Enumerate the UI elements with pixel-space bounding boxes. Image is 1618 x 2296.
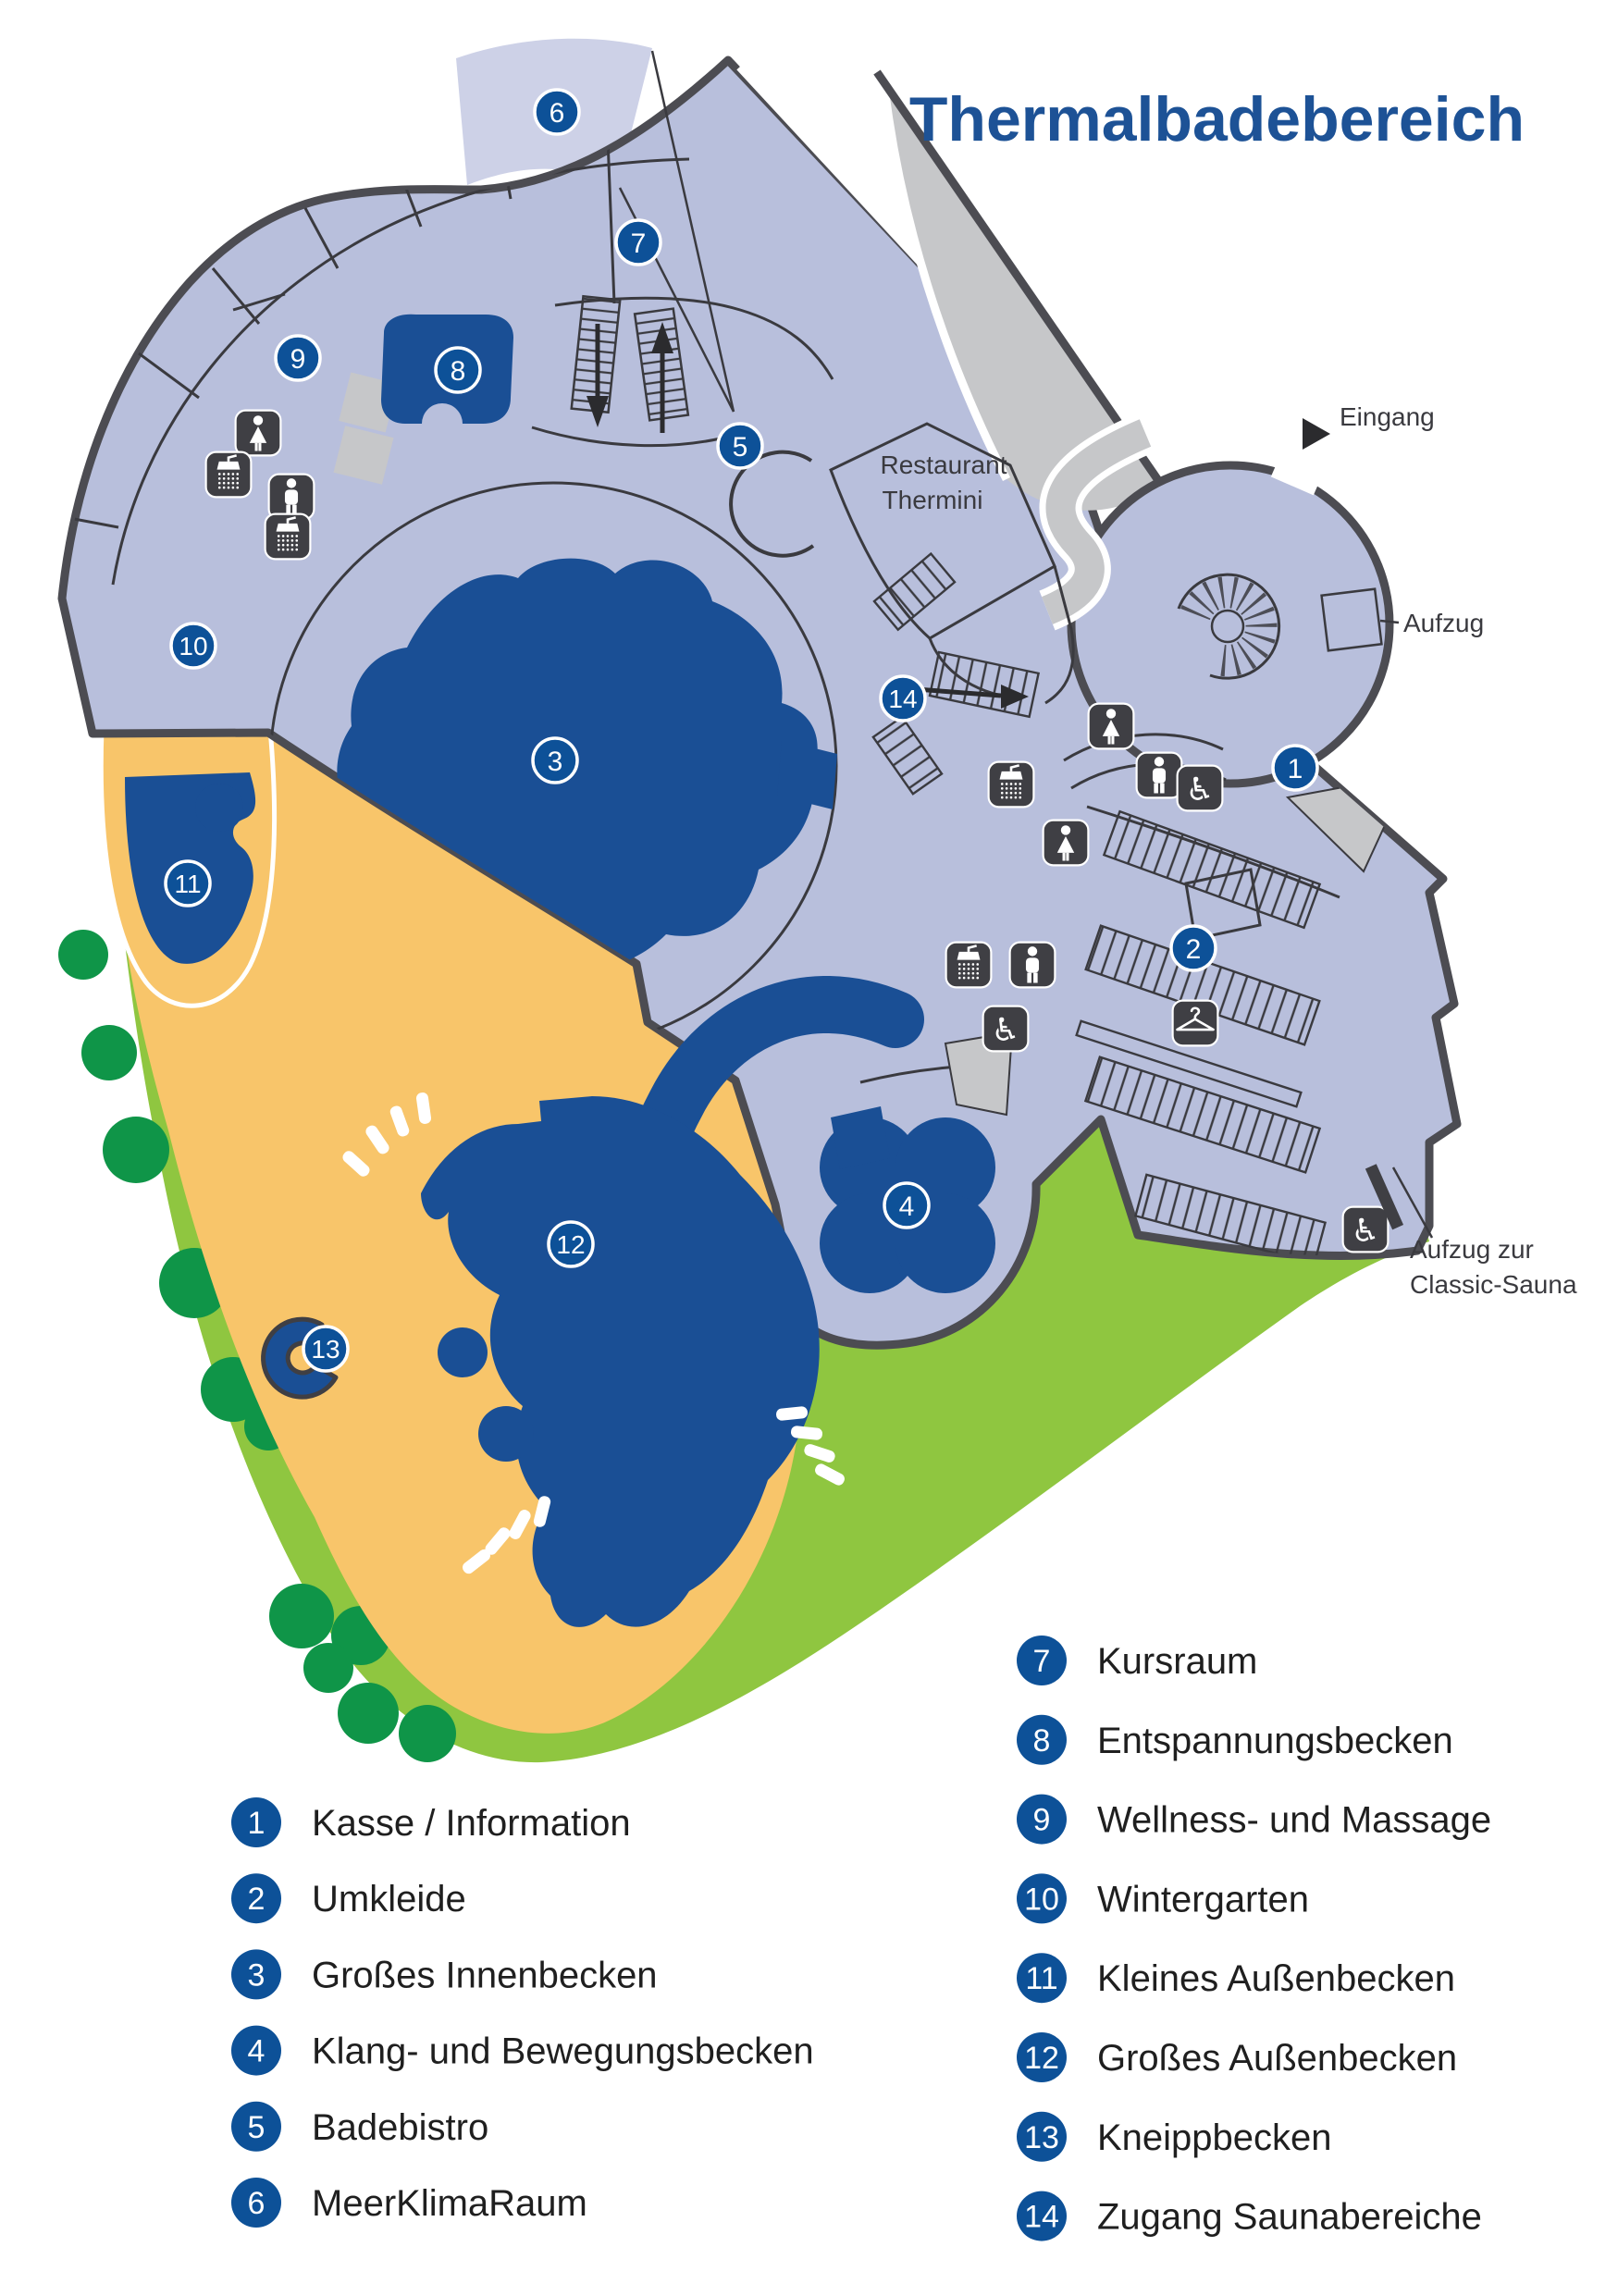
- legend-number: 11: [1025, 1961, 1057, 1996]
- legend-item-7: 7Kursraum: [1017, 1636, 1257, 1685]
- legend-item-13: 13Kneippbecken: [1017, 2112, 1332, 2162]
- map-marker-3: 3: [533, 738, 577, 783]
- map-marker-6: 6: [535, 90, 579, 134]
- legend-item-3: 3Großes Innenbecken: [231, 1949, 658, 1999]
- legend-number: 2: [248, 1882, 266, 1917]
- wheelchair-icon: [983, 1006, 1029, 1052]
- map-marker-13: 13: [303, 1327, 348, 1371]
- hanger-icon: [1173, 1001, 1218, 1046]
- entrance-arrow-icon: [1303, 418, 1330, 450]
- svg-text:9: 9: [290, 344, 306, 375]
- legend-label: Umkleide: [312, 1879, 466, 1920]
- legend-item-9: 9Wellness- und Massage: [1017, 1795, 1491, 1845]
- legend-label: Badebistro: [312, 2107, 488, 2148]
- map-marker-11: 11: [166, 861, 210, 906]
- legend-number: 14: [1024, 2200, 1059, 2235]
- legend-number: 9: [1033, 1803, 1051, 1838]
- map-marker-7: 7: [616, 220, 661, 265]
- legend-label: Klang- und Bewegungsbecken: [312, 2031, 814, 2072]
- wheelchair-icon: [1343, 1207, 1389, 1253]
- legend-item-4: 4Klang- und Bewegungsbecken: [231, 2026, 814, 2076]
- svg-text:11: 11: [174, 870, 201, 898]
- legend-item-1: 1Kasse / Information: [231, 1797, 631, 1847]
- svg-text:7: 7: [631, 228, 647, 259]
- svg-text:6: 6: [550, 98, 565, 129]
- legend-number: 3: [248, 1957, 266, 1993]
- svg-text:10: 10: [179, 632, 207, 660]
- legend-label: Großes Außenbecken: [1097, 2038, 1457, 2079]
- legend-label: Kursraum: [1097, 1641, 1257, 1682]
- legend-label: Großes Innenbecken: [312, 1955, 658, 1995]
- legend-number: 1: [248, 1806, 266, 1841]
- shower-icon: [989, 762, 1034, 808]
- legend-label: Kneippbecken: [1097, 2117, 1332, 2158]
- woman-icon: [1044, 821, 1089, 866]
- legend-label: MeerKlimaRaum: [312, 2183, 587, 2224]
- map-marker-12: 12: [549, 1222, 593, 1266]
- legend-label: Wintergarten: [1097, 1879, 1309, 1920]
- legend-item-12: 12Großes Außenbecken: [1017, 2032, 1457, 2082]
- svg-text:1: 1: [1288, 754, 1303, 784]
- restaurant-label-line1: Restaurant: [881, 451, 1007, 479]
- classic-sauna-label-line2: Classic-Sauna: [1410, 1270, 1577, 1299]
- legend-number: 7: [1033, 1644, 1051, 1679]
- map-marker-10: 10: [171, 623, 216, 668]
- legend-number: 12: [1024, 2041, 1059, 2076]
- map-marker-5: 5: [718, 424, 762, 468]
- legend-item-8: 8Entspannungsbecken: [1017, 1715, 1453, 1765]
- legend-item-2: 2Umkleide: [231, 1873, 466, 1923]
- wheelchair-icon: [1178, 766, 1223, 811]
- legend-number: 8: [1033, 1723, 1051, 1759]
- svg-text:8: 8: [451, 356, 466, 387]
- shower-icon: [206, 452, 252, 498]
- legend-number: 10: [1024, 1882, 1059, 1917]
- legend-label: Kasse / Information: [312, 1803, 631, 1844]
- legend-label: Kleines Außenbecken: [1097, 1958, 1455, 1999]
- legend-item-14: 14Zugang Saunabereiche: [1017, 2191, 1482, 2241]
- legend-number: 4: [248, 2034, 266, 2069]
- legend-label: Zugang Saunabereiche: [1097, 2197, 1482, 2238]
- legend-item-10: 10Wintergarten: [1017, 1873, 1309, 1923]
- map-marker-1: 1: [1273, 746, 1317, 790]
- legend-label: Wellness- und Massage: [1097, 1800, 1491, 1841]
- man-icon: [1137, 753, 1182, 798]
- elevator-box: [1322, 589, 1382, 651]
- svg-text:2: 2: [1186, 934, 1202, 965]
- classic-sauna-label-line1: Aufzug zur: [1410, 1235, 1534, 1264]
- page-title: Thermalbadebereich: [909, 84, 1525, 154]
- legend-label: Entspannungsbecken: [1097, 1721, 1453, 1761]
- legend-number: 13: [1024, 2120, 1059, 2155]
- svg-text:5: 5: [733, 432, 748, 463]
- svg-text:12: 12: [556, 1230, 585, 1259]
- map-marker-9: 9: [276, 336, 320, 380]
- man-icon: [269, 475, 315, 520]
- legend-number: 6: [248, 2186, 266, 2221]
- restaurant-label-line2: Thermini: [883, 486, 983, 514]
- woman-icon: [1089, 704, 1134, 749]
- map-marker-4: 4: [884, 1183, 929, 1228]
- woman-icon: [236, 411, 281, 456]
- svg-text:3: 3: [548, 747, 563, 777]
- svg-text:13: 13: [311, 1335, 340, 1364]
- legend-item-6: 6MeerKlimaRaum: [231, 2178, 587, 2228]
- svg-text:14: 14: [888, 685, 917, 713]
- thermal-bath-map: ♿: [0, 0, 1618, 2296]
- legend-item-11: 11Kleines Außenbecken: [1017, 1953, 1455, 2003]
- man-icon: [1010, 943, 1056, 988]
- svg-text:4: 4: [899, 1191, 915, 1222]
- map-marker-14: 14: [881, 676, 925, 721]
- shower-icon: [266, 514, 311, 560]
- shower-icon: [946, 943, 992, 988]
- map-marker-8: 8: [436, 348, 480, 392]
- eingang-label: Eingang: [1340, 402, 1435, 431]
- aufzug-label: Aufzug: [1403, 609, 1484, 637]
- legend-number: 5: [248, 2110, 266, 2145]
- map-marker-2: 2: [1171, 926, 1216, 970]
- legend-item-5: 5Badebistro: [231, 2102, 488, 2152]
